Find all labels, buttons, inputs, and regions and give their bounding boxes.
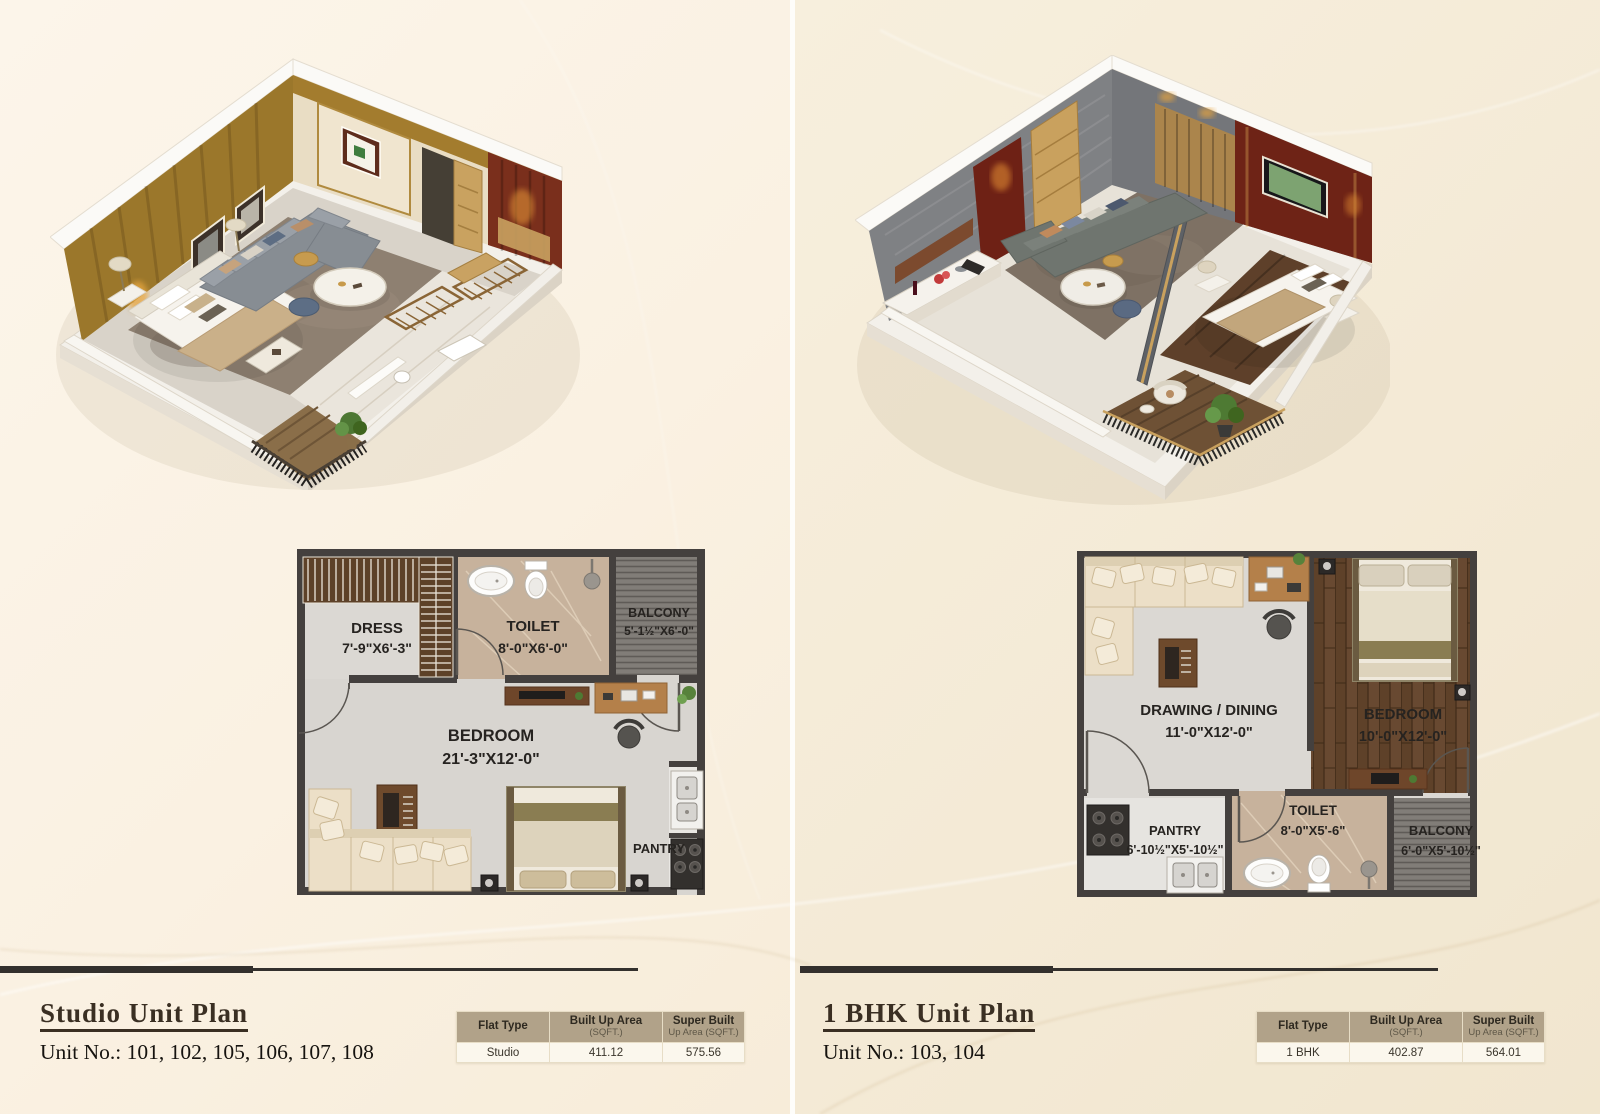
one-bhk-floor-plan: DRAWING / DINING 11'-0"X12'-0" BEDROOM 1… <box>1071 543 1483 905</box>
fireplace-icon <box>377 785 417 835</box>
col-flat-type: Flat Type <box>457 1012 549 1042</box>
studio-3d-render <box>50 55 580 490</box>
col-flat-type: Flat Type <box>1257 1012 1349 1042</box>
col-super-built-area: Super Built Up Area (SQFT.) <box>663 1012 744 1042</box>
tv-console-icon <box>505 687 589 705</box>
studio-floor-plan: DRESS 7'-9"X6'-3" TOILET 8'-0"X6'-0" BAL… <box>291 541 713 901</box>
side-table-icon <box>294 252 318 266</box>
balcony-label: BALCONY <box>1409 823 1474 838</box>
fireplace-icon <box>1159 639 1197 687</box>
one-bhk-spec-table: Flat Type Built Up Area (SQFT.) Super Bu… <box>1256 1011 1545 1063</box>
one-bhk-title: 1 BHK Unit Plan <box>823 1000 1035 1032</box>
col-built-up-area-unit: (SQFT.) <box>589 1028 622 1039</box>
chair-icon <box>618 726 640 748</box>
col-super-built-line2: Up Area (SQFT.) <box>1468 1028 1538 1039</box>
toilet-wc-icon <box>1308 855 1330 892</box>
bed-icon <box>507 787 625 891</box>
built-up-value: 402.87 <box>1350 1043 1462 1062</box>
kitchen-sink-icon <box>1167 857 1223 893</box>
wood-door <box>454 160 482 253</box>
col-super-built-area: Super Built Up Area (SQFT.) <box>1463 1012 1544 1042</box>
studio-title: Studio Unit Plan <box>40 1000 248 1032</box>
plant-icon <box>1293 553 1305 565</box>
toilet-label: TOILET <box>506 618 559 635</box>
pantry-label: PANTRY <box>1149 823 1201 838</box>
ottoman-icon <box>1113 300 1141 318</box>
studio-spec-table: Flat Type Built Up Area (SQFT.) Super Bu… <box>456 1011 745 1063</box>
dresser-icon <box>1349 769 1427 789</box>
bed-icon <box>1353 559 1457 681</box>
dress-label: DRESS <box>351 620 403 637</box>
col-built-up-area: Built Up Area (SQFT.) <box>550 1012 662 1042</box>
flat-type-value: Studio <box>457 1043 549 1062</box>
footer-rule-thick <box>800 966 1053 973</box>
toilet-wc-icon <box>525 561 547 599</box>
chair-icon <box>1267 615 1291 639</box>
unit-plan-sheet: DRESS 7'-9"X6'-3" TOILET 8'-0"X6'-0" BAL… <box>0 0 1600 1114</box>
balcony-label: BALCONY <box>628 606 690 620</box>
drawing-dining-label: DRAWING / DINING <box>1140 702 1278 719</box>
one-bhk-unit-numbers: Unit No.: 103, 104 <box>823 1040 985 1065</box>
bedroom-dim: 10'-0"X12'-0" <box>1359 729 1447 745</box>
pantry-dim: 6'-10½"X5'-10½" <box>1126 843 1223 857</box>
ottoman-icon <box>289 298 319 316</box>
stove-icon <box>1087 805 1129 855</box>
dress-dim: 7'-9"X6'-3" <box>342 640 412 656</box>
studio-unit-numbers: Unit No.: 101, 102, 105, 106, 107, 108 <box>40 1040 374 1065</box>
bedroom-label: BEDROOM <box>1364 706 1442 723</box>
pantry-label: PANTRY <box>633 841 685 856</box>
super-built-value: 575.56 <box>663 1043 744 1062</box>
doorway <box>422 147 454 245</box>
built-up-value: 411.12 <box>550 1043 662 1062</box>
balcony-dim: 5'-1½"X6'-0" <box>624 624 694 638</box>
drawing-dining-dim: 11'-0"X12'-0" <box>1165 725 1253 741</box>
toilet-dim: 8'-0"X6'-0" <box>498 640 568 656</box>
bedroom-label: BEDROOM <box>448 727 534 745</box>
bathtub-icon <box>1244 858 1290 888</box>
bedroom-dim: 21'-3"X12'-0" <box>442 751 540 768</box>
col-built-up-area-unit: (SQFT.) <box>1389 1028 1422 1039</box>
kitchen-sink-icon <box>671 771 703 829</box>
col-built-up-area: Built Up Area (SQFT.) <box>1350 1012 1462 1042</box>
one-bhk-3d-render <box>855 55 1390 510</box>
flat-type-value: 1 BHK <box>1257 1043 1349 1062</box>
toilet-label: TOILET <box>1289 803 1338 818</box>
toilet-dim: 8'-0"X5'-6" <box>1281 823 1346 838</box>
footer-rule-thin <box>253 968 638 971</box>
side-table-icon <box>1103 255 1123 267</box>
footer-rule-thin <box>1053 968 1438 971</box>
bathtub-icon <box>468 566 514 596</box>
col-super-built-line2: Up Area (SQFT.) <box>668 1028 738 1039</box>
balcony-dim: 6'-0"X5'-10½" <box>1401 844 1481 858</box>
footer-rule-thick <box>0 966 253 973</box>
super-built-value: 564.01 <box>1463 1043 1544 1062</box>
